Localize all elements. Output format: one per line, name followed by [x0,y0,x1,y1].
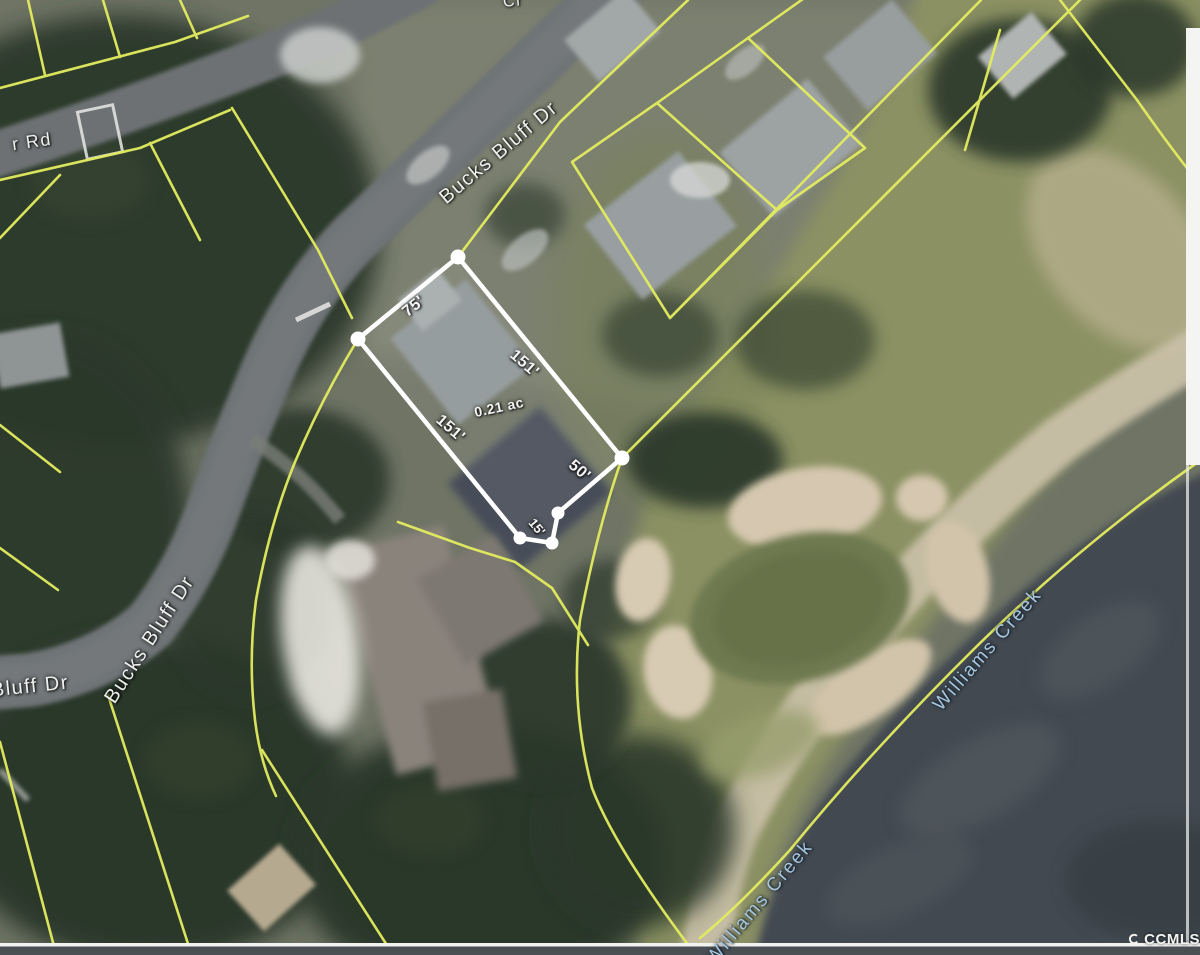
right-edge-line [1186,465,1189,945]
white-sand-patch [325,540,375,580]
parcel-corner-marker [514,532,527,545]
canopy-highlight [145,722,255,798]
aerial-parcel-map: Bucks Bluff Dr Bucks Bluff Dr Bluff Dr r… [0,0,1200,955]
bottom-border-line [0,943,1200,947]
parcel-corner-marker [552,507,565,520]
parcel-corner-marker [351,332,366,347]
driveway-patch [670,162,730,198]
light-roof-patch [280,27,360,83]
tree-canopy [602,293,718,377]
canopy-highlight [375,785,485,855]
clubhouse-roof-wing [423,689,517,792]
right-margin-strip [1186,28,1200,465]
bottom-dark-bar [0,947,1200,955]
aerial-photo [0,0,1200,955]
tree-canopy [735,290,875,390]
sand-bunker [896,475,948,521]
parcel-corner-marker [615,451,630,466]
parcel-corner-marker [546,537,559,550]
parcel-corner-marker [451,250,466,265]
